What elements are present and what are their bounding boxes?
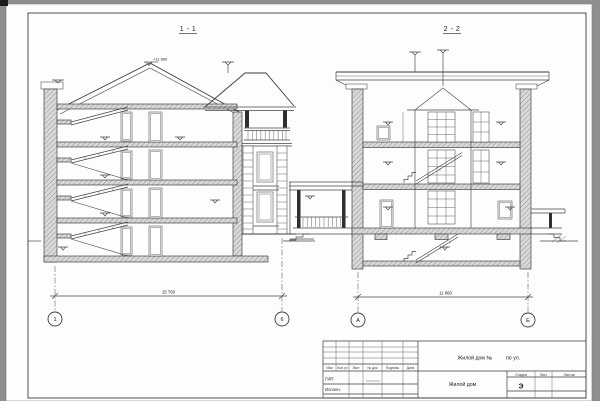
axis-label-1: 1 [53,317,56,323]
tb-col-izm: Изм [326,366,333,370]
corner-mark [0,0,8,6]
tb-role-gip: ГИП [325,377,334,382]
tb-stage-header: Стадия [515,373,527,377]
tb-col-ndoc: № док [368,366,378,370]
section-1-title: 1 - 1 [180,26,197,33]
drawing-sheet-screenshot: 1 - 1 +11.660 [0,0,600,401]
section-2-title: 2 - 2 [444,26,461,33]
tb-stage-value: Э [519,384,524,391]
axis-label-6: 6 [280,317,283,323]
tb-sheet-header: Лист [540,373,548,377]
section-2-dimension-text: 11 960 [439,291,452,296]
tb-object-name: Жилой дом [449,381,477,388]
section-1-elevation-text: +11.660 [153,57,168,62]
section-1-dimension-text: 15 760 [162,290,176,295]
tb-role-ispoln: Исполн. [325,387,341,392]
tb-col-koluch: Кол.уч [337,366,347,370]
tb-project-title-2: по ул. [506,356,520,362]
axis-label-a: А [356,318,360,324]
axis-label-e: Е [526,318,530,324]
tb-col-data: Дата [407,366,415,370]
tb-project-title-1: Жилой дом № [458,355,493,362]
tb-col-podpis: Подпись [386,366,400,370]
tb-sheets-header: Листов [563,373,574,377]
architectural-drawing-canvas: 1 - 1 +11.660 [0,0,600,401]
tb-col-list: Лист [352,366,360,370]
